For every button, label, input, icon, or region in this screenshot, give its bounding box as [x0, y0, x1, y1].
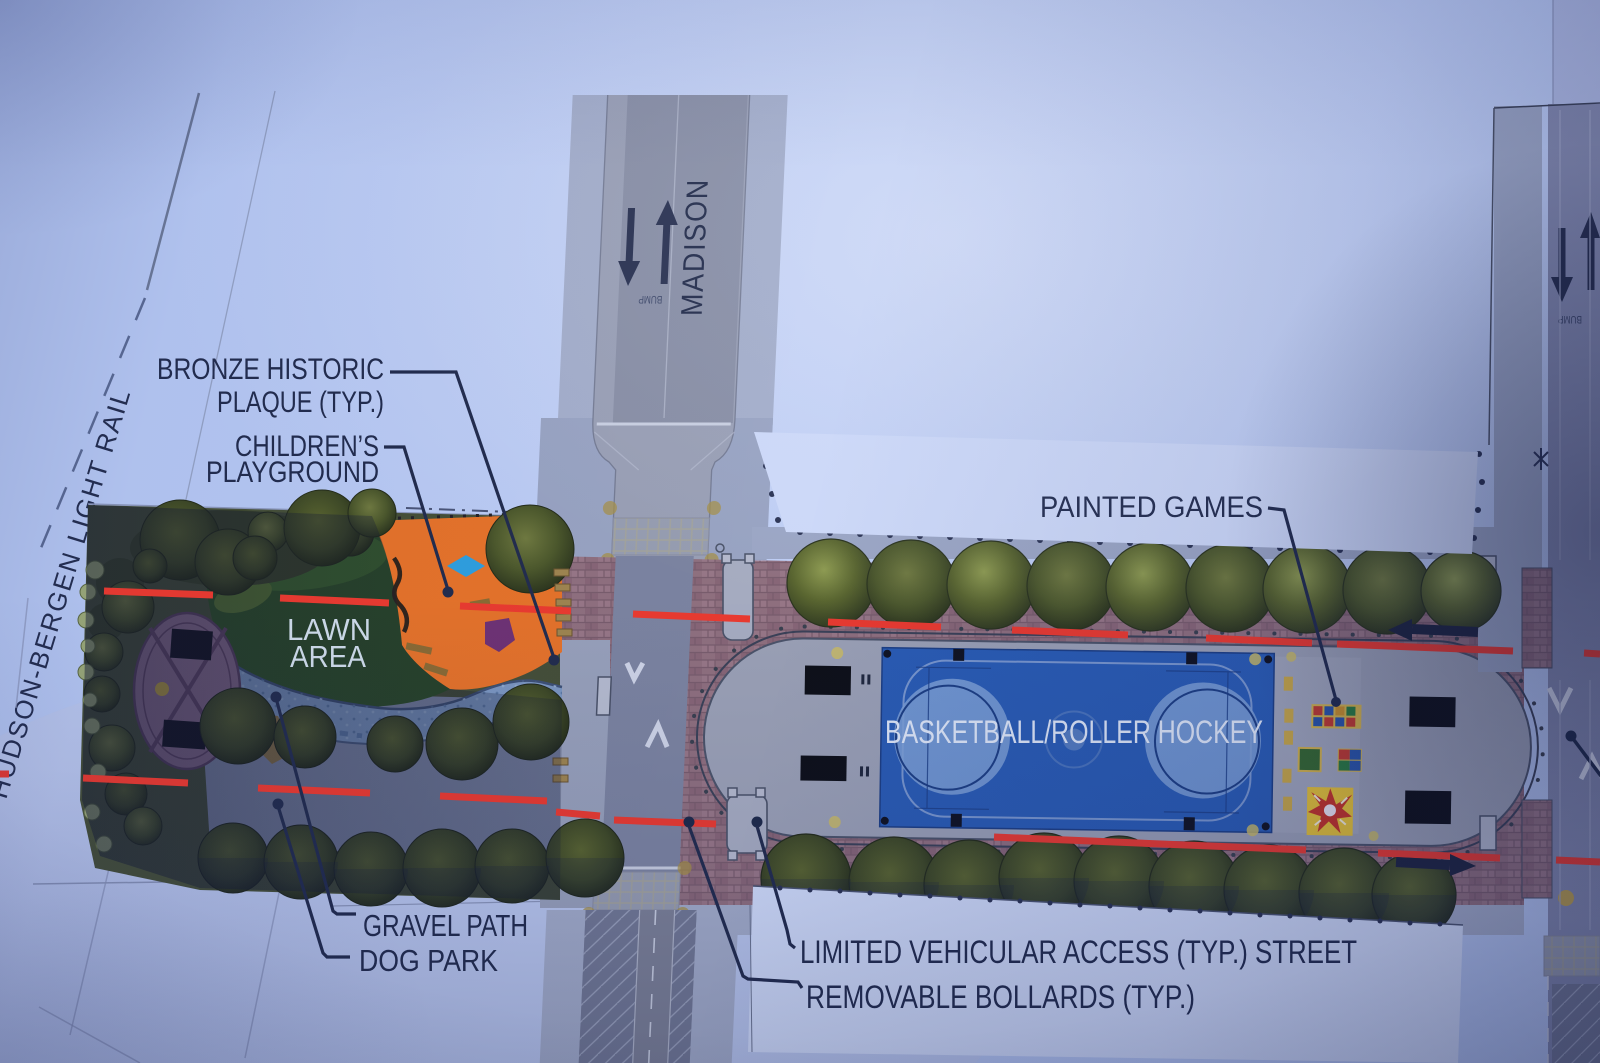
svg-text:LIMITED VEHICULAR ACCESS (TYP.: LIMITED VEHICULAR ACCESS (TYP.) STREET — [800, 934, 1357, 970]
svg-text:GRAVEL PATH: GRAVEL PATH — [363, 908, 528, 943]
svg-text:PAINTED GAMES: PAINTED GAMES — [1040, 491, 1263, 524]
svg-text:PLAQUE (TYP.): PLAQUE (TYP.) — [217, 386, 384, 419]
svg-text:BASKETBALL/ROLLER HOCKEY: BASKETBALL/ROLLER HOCKEY — [885, 714, 1263, 750]
svg-text:AREA: AREA — [290, 639, 366, 674]
svg-text:REMOVABLE BOLLARDS (TYP.): REMOVABLE BOLLARDS (TYP.) — [806, 979, 1195, 1015]
svg-text:BRONZE HISTORIC: BRONZE HISTORIC — [157, 353, 384, 386]
svg-text:MADISON: MADISON — [676, 178, 715, 316]
svg-text:BUMP: BUMP — [638, 293, 663, 305]
svg-text:DOG PARK: DOG PARK — [359, 943, 498, 978]
svg-text:BUMP: BUMP — [1558, 313, 1582, 325]
svg-text:PLAYGROUND: PLAYGROUND — [206, 456, 379, 489]
